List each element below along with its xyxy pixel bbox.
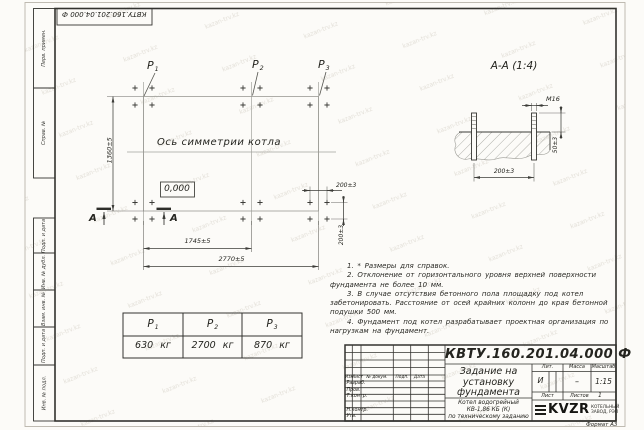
row-razrab: Разраб.	[347, 382, 366, 387]
doc-number: КВТУ.160.201.04.000 Ф	[445, 348, 616, 361]
mass-label: Масса	[563, 365, 591, 370]
sheets-value: 1	[598, 393, 602, 399]
sheets-label: Листов	[570, 394, 589, 399]
axis-caption: Ось симметрии котла	[157, 138, 281, 148]
loads-table-head-1: P1	[123, 319, 183, 330]
margin-cell-inv-dubl: Инв. № дубл.	[33, 253, 55, 290]
note-3: 3. В случае отсутствия бетонного пола пл…	[330, 290, 614, 318]
corner-stamp-text: КВТУ.160.201.04.000 Ф	[62, 10, 146, 17]
row-prov: Пров.	[347, 389, 361, 394]
notes-block: 1. * Размеры для справок. 2. Отклонение …	[330, 262, 614, 336]
margin-cell-podp-data-2: Подп. и дата	[33, 327, 55, 365]
loads-table-value-3: 870 кг	[242, 341, 302, 351]
col-podp: Подп.	[393, 376, 411, 380]
margin-cell-sprav-no: Справ. №	[33, 88, 55, 178]
scale-value: 1:15	[591, 378, 616, 386]
margin-cell-inv-podl: Инв. № подл.	[33, 365, 55, 421]
row-tkontr: Т.контр.	[347, 395, 368, 400]
drawing-sheet: kazan-trv.kz	[0, 0, 644, 430]
col-doc-no: № докум.	[361, 376, 393, 380]
loads-table-head-3: P3	[242, 319, 302, 330]
loads-table-value-1: 630 кг	[123, 341, 183, 351]
load-point-label-p3: P3	[318, 59, 330, 70]
dim-protrusion-label: 50±3	[553, 125, 559, 165]
margin-cell-podp-data-1: Подп. и дата	[33, 218, 55, 253]
note-2: 2. Отклонение от горизонтального уровня …	[330, 271, 614, 290]
lit-label: Лит.	[532, 365, 563, 370]
note-4: 4. Фундамент под котел разрабатывает про…	[330, 318, 614, 337]
lit-value: И	[532, 377, 549, 385]
kvzr-logo-text: KVZR	[548, 403, 590, 416]
section-letter-right: А	[170, 214, 178, 224]
sheet-label: Лист	[532, 394, 563, 399]
col-list: Лист	[352, 376, 361, 380]
margin-cell-perv-primen: Перв. примен.	[33, 8, 55, 88]
kvzr-logo-desc: КОТЕЛЬНЫЙ ЗАВОД, РЭП	[591, 405, 619, 416]
dim-span2-label: 2770±5	[211, 256, 252, 263]
margin-cell-vzam-inv: Взам. инв. №	[33, 290, 55, 327]
row-nkontr: Н.контр.	[347, 409, 368, 414]
dim-height-label: 1360±5	[106, 127, 113, 174]
section-title: А-А (1:4)	[482, 61, 546, 72]
dim-bolt-y-label: 200±3	[339, 215, 345, 255]
scale-label: Масштаб	[591, 365, 616, 370]
elevation-mark: 0,000	[160, 185, 194, 194]
format-note: Формат А3	[586, 423, 617, 429]
product-name: Котел водогрейный КВ-1,86 КБ (К) по техн…	[445, 400, 532, 421]
loads-table-value-2: 2700 кг	[183, 341, 242, 351]
col-data: Дата	[411, 376, 428, 380]
dim-bolt-x-label: 200±3	[336, 183, 356, 189]
loads-table-head-2: P2	[183, 319, 242, 330]
mass-value: –	[563, 378, 591, 386]
load-point-label-p1: P1	[147, 60, 159, 71]
dim-spacing-label: 200±3	[484, 169, 524, 175]
thread-label: М16	[546, 96, 560, 103]
load-point-label-p2: P2	[252, 59, 264, 70]
doc-title: Задание на установку фундамента	[445, 367, 532, 399]
section-letter-left: А	[89, 214, 97, 224]
dim-span1-label: 1745±5	[177, 238, 218, 245]
row-utv: Утв.	[347, 415, 357, 420]
corner-stamp: КВТУ.160.201.04.000 Ф	[57, 10, 152, 17]
note-1: 1. * Размеры для справок.	[330, 262, 614, 271]
